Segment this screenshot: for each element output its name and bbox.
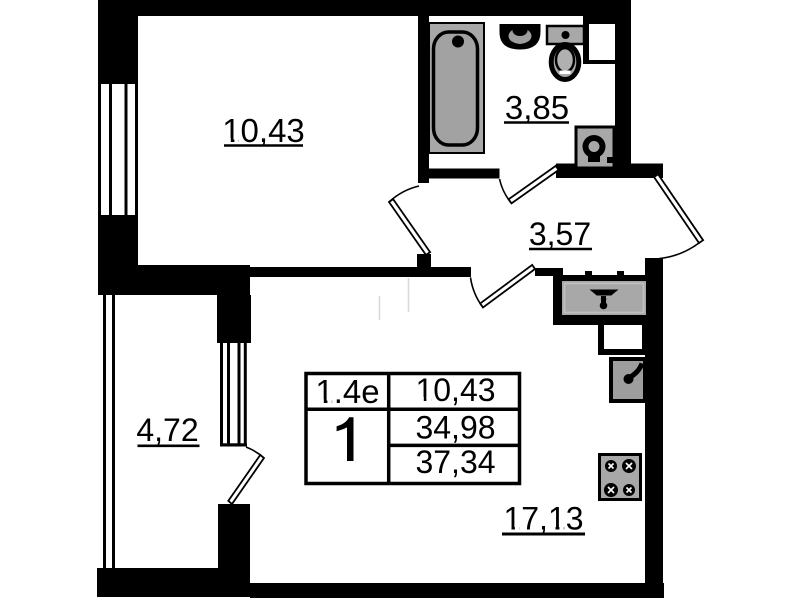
svg-text:4,72: 4,72 — [136, 412, 198, 448]
svg-text:10,43: 10,43 — [415, 372, 495, 408]
svg-text:3,57: 3,57 — [529, 216, 591, 252]
svg-text:10,43: 10,43 — [222, 112, 305, 149]
svg-text:1.4e: 1.4e — [315, 373, 379, 410]
svg-text:37,34: 37,34 — [415, 444, 495, 480]
svg-text:34,98: 34,98 — [415, 410, 495, 446]
svg-text:3,85: 3,85 — [505, 89, 569, 126]
svg-text:17,13: 17,13 — [503, 501, 583, 537]
